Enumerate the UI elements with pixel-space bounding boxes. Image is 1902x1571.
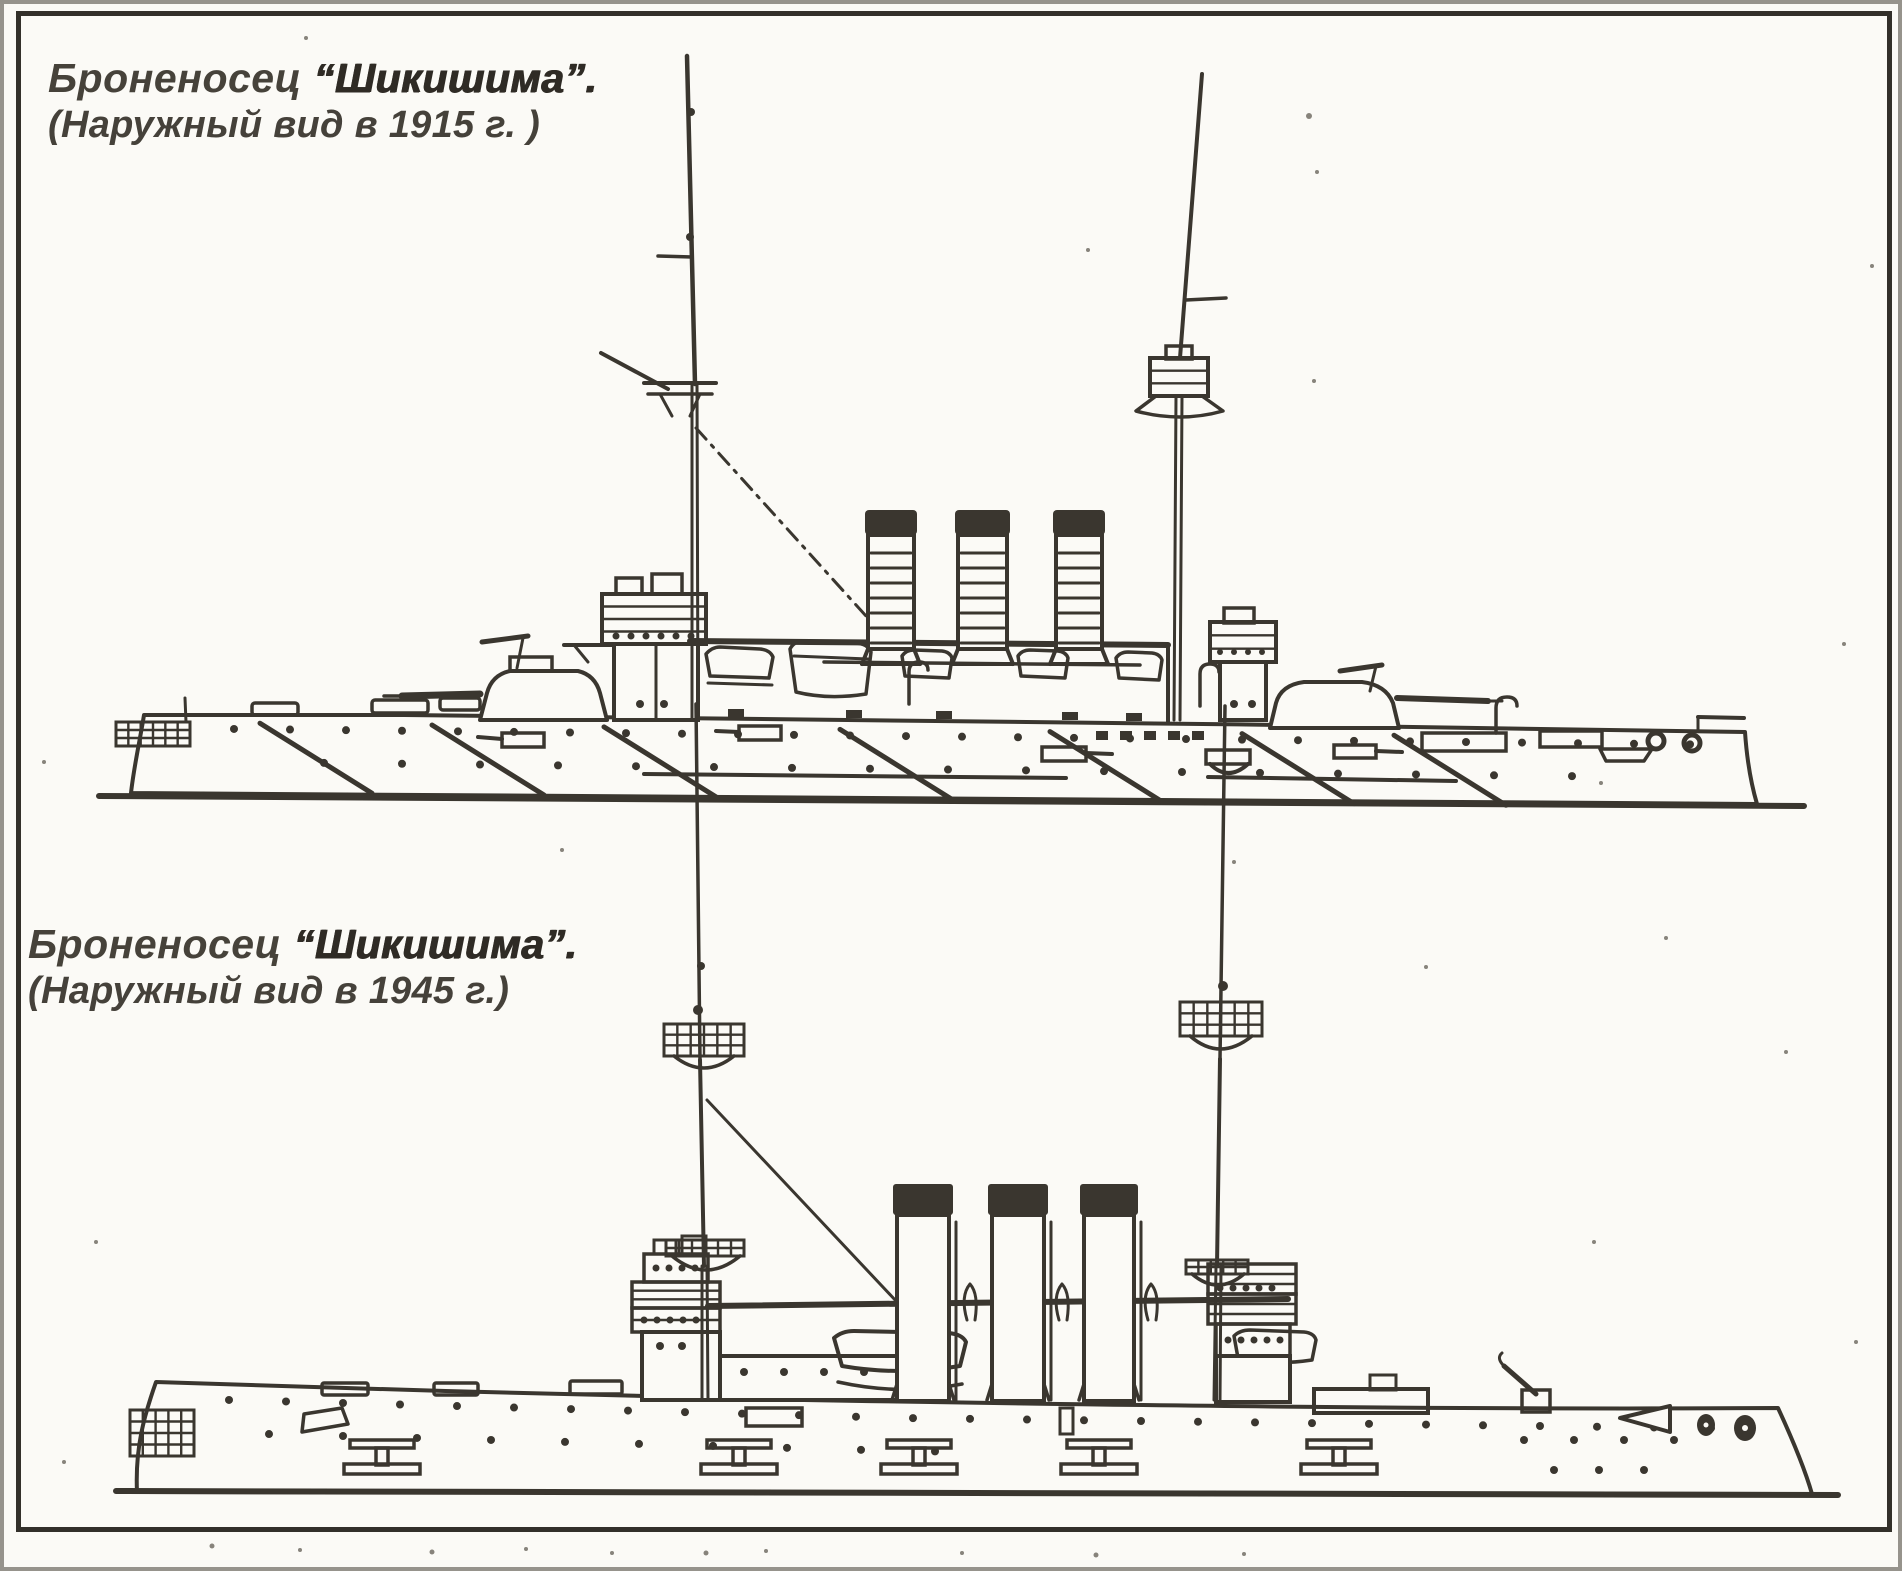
ship-name: “Шикишима”.: [314, 55, 598, 101]
caption-subtitle: (Наружный вид в 1945 г.): [28, 969, 492, 1014]
caption-title: Броненосец “Шикишима”.: [48, 54, 508, 103]
masts-1945: [664, 704, 1262, 1400]
funnels-1945: [892, 1184, 1157, 1401]
hull-1945: [116, 1382, 1838, 1495]
caption-lead: Броненосец: [28, 921, 282, 967]
figure-caption-1915: Броненосец “Шикишима”. (Наружный вид в 1…: [48, 54, 508, 148]
battleship-1915-drawing: [99, 56, 1804, 806]
superstructure-1915: [690, 641, 1168, 723]
ship-drawings-svg: [4, 4, 1902, 1571]
ship-name: “Шикишима”.: [294, 921, 578, 967]
caption-title: Броненосец “Шикишима”.: [28, 920, 492, 969]
caption-lead: Броненосец: [48, 55, 302, 101]
battleship-1945-drawing: [116, 704, 1838, 1495]
scanned-book-page: Броненосец “Шикишима”. (Наружный вид в 1…: [0, 0, 1902, 1571]
caption-subtitle: (Наружный вид в 1915 г. ): [48, 103, 508, 148]
funnels-1915: [824, 510, 1140, 665]
figure-caption-1945: Броненосец “Шикишима”. (Наружный вид в 1…: [28, 920, 492, 1014]
